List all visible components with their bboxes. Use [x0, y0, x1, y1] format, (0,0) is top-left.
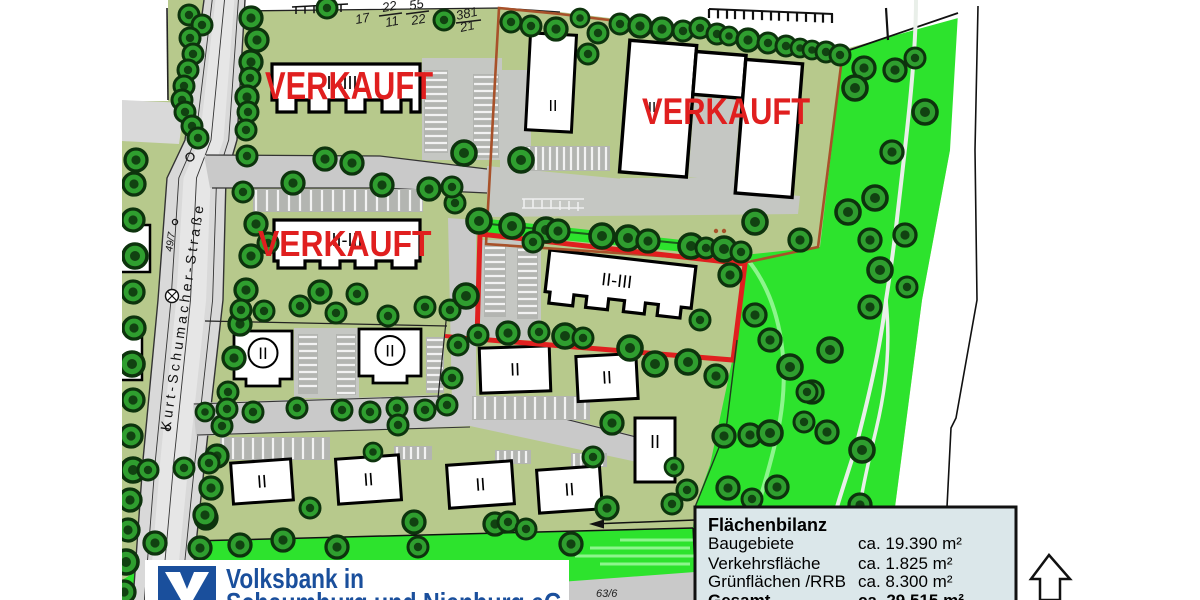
svg-text:II: II — [650, 432, 660, 452]
svg-text:ca. 19.390 m²: ca. 19.390 m² — [858, 534, 962, 553]
svg-text:21: 21 — [458, 17, 476, 35]
svg-text:II: II — [564, 479, 575, 500]
svg-text:Grünflächen /RRB: Grünflächen /RRB — [708, 572, 846, 591]
svg-text:II: II — [385, 342, 394, 361]
svg-text:Schaumburg und Nienburg eG: Schaumburg und Nienburg eG — [226, 587, 562, 600]
svg-text:II: II — [475, 474, 486, 495]
svg-text:II: II — [256, 471, 267, 492]
svg-text:II: II — [601, 367, 612, 387]
svg-text:VERKAUFT: VERKAUFT — [258, 224, 432, 264]
svg-text:63/6: 63/6 — [596, 588, 618, 600]
svg-text:ca. 1.825 m²: ca. 1.825 m² — [858, 554, 953, 573]
svg-text:II: II — [258, 344, 267, 363]
svg-text:Gesamt: Gesamt — [708, 591, 771, 600]
svg-text:II: II — [549, 98, 558, 115]
svg-text:ca. 8.300 m²: ca. 8.300 m² — [858, 572, 953, 591]
svg-text:ca. 29.515 m²: ca. 29.515 m² — [858, 591, 964, 600]
svg-text:VERKAUFT: VERKAUFT — [642, 91, 810, 132]
svg-text:Flächenbilanz: Flächenbilanz — [708, 515, 827, 535]
svg-text:II: II — [363, 469, 374, 490]
svg-text:Baugebiete: Baugebiete — [708, 534, 794, 553]
svg-text:II-III: II-III — [600, 269, 633, 292]
svg-text:Verkehrsfläche: Verkehrsfläche — [708, 554, 820, 573]
svg-text:VERKAUFT: VERKAUFT — [265, 65, 434, 108]
svg-text:II: II — [510, 359, 521, 379]
